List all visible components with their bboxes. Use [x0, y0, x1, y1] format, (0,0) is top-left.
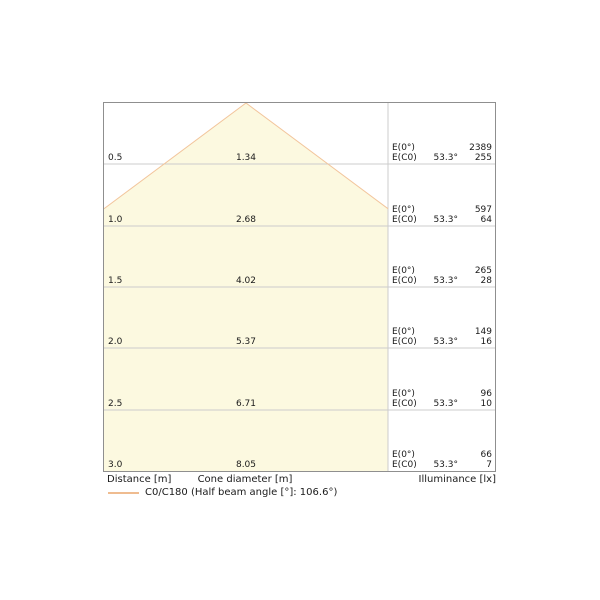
half-angle-value: 53.3°	[424, 399, 458, 409]
legend-label: C0/C180 (Half beam angle [°]: 106.6°)	[145, 487, 337, 499]
legend-line-swatch	[108, 492, 139, 494]
table-row: E(0°) 149 2.0 5.37 E(C0) 53.3° 16	[104, 327, 495, 348]
cone-diameter-value: 2.68	[104, 215, 388, 225]
table-row: E(0°) 2389 0.5 1.34 E(C0) 53.3° 255	[104, 143, 495, 164]
e0-label: E(0°)	[392, 327, 415, 337]
chart-area: E(0°) 2389 0.5 1.34 E(C0) 53.3° 255 E(0°…	[103, 102, 496, 472]
cone-diameter-value: 1.34	[104, 153, 388, 163]
half-angle-value: 53.3°	[424, 460, 458, 470]
half-angle-value: 53.3°	[424, 215, 458, 225]
half-angle-value: 53.3°	[424, 153, 458, 163]
e0-label: E(0°)	[392, 389, 415, 399]
e0-value: 96	[481, 389, 492, 399]
ec0-value: 7	[486, 460, 492, 470]
ec0-label: E(C0)	[392, 460, 417, 470]
e0-value: 265	[475, 266, 492, 276]
e0-value: 149	[475, 327, 492, 337]
cone-diameter-value: 4.02	[104, 276, 388, 286]
cone-diameter-value: 5.37	[104, 337, 388, 347]
ec0-value: 255	[475, 153, 492, 163]
table-row: E(0°) 96 2.5 6.71 E(C0) 53.3° 10	[104, 389, 495, 410]
table-row: E(0°) 597 1.0 2.68 E(C0) 53.3° 64	[104, 205, 495, 226]
ec0-label: E(C0)	[392, 215, 417, 225]
half-angle-value: 53.3°	[424, 337, 458, 347]
axis-labels-row: Distance [m] Cone diameter [m] Illuminan…	[103, 474, 496, 487]
ec0-label: E(C0)	[392, 276, 417, 286]
table-row: E(0°) 265 1.5 4.02 E(C0) 53.3° 28	[104, 266, 495, 287]
e0-value: 597	[475, 205, 492, 215]
e0-label: E(0°)	[392, 450, 415, 460]
ec0-value: 28	[481, 276, 492, 286]
e0-label: E(0°)	[392, 143, 415, 153]
e0-label: E(0°)	[392, 205, 415, 215]
ec0-label: E(C0)	[392, 337, 417, 347]
illuminance-axis-label: Illuminance [lx]	[419, 474, 497, 486]
cone-diameter-value: 6.71	[104, 399, 388, 409]
e0-value: 2389	[469, 143, 492, 153]
table-row: E(0°) 66 3.0 8.05 E(C0) 53.3° 7	[104, 450, 495, 471]
half-angle-value: 53.3°	[424, 276, 458, 286]
cone-diameter-axis-label: Cone diameter [m]	[103, 474, 387, 486]
ec0-label: E(C0)	[392, 399, 417, 409]
ec0-label: E(C0)	[392, 153, 417, 163]
ec0-value: 10	[481, 399, 492, 409]
cone-diameter-value: 8.05	[104, 460, 388, 470]
ec0-value: 16	[481, 337, 492, 347]
e0-value: 66	[481, 450, 492, 460]
e0-label: E(0°)	[392, 266, 415, 276]
ec0-value: 64	[481, 215, 492, 225]
